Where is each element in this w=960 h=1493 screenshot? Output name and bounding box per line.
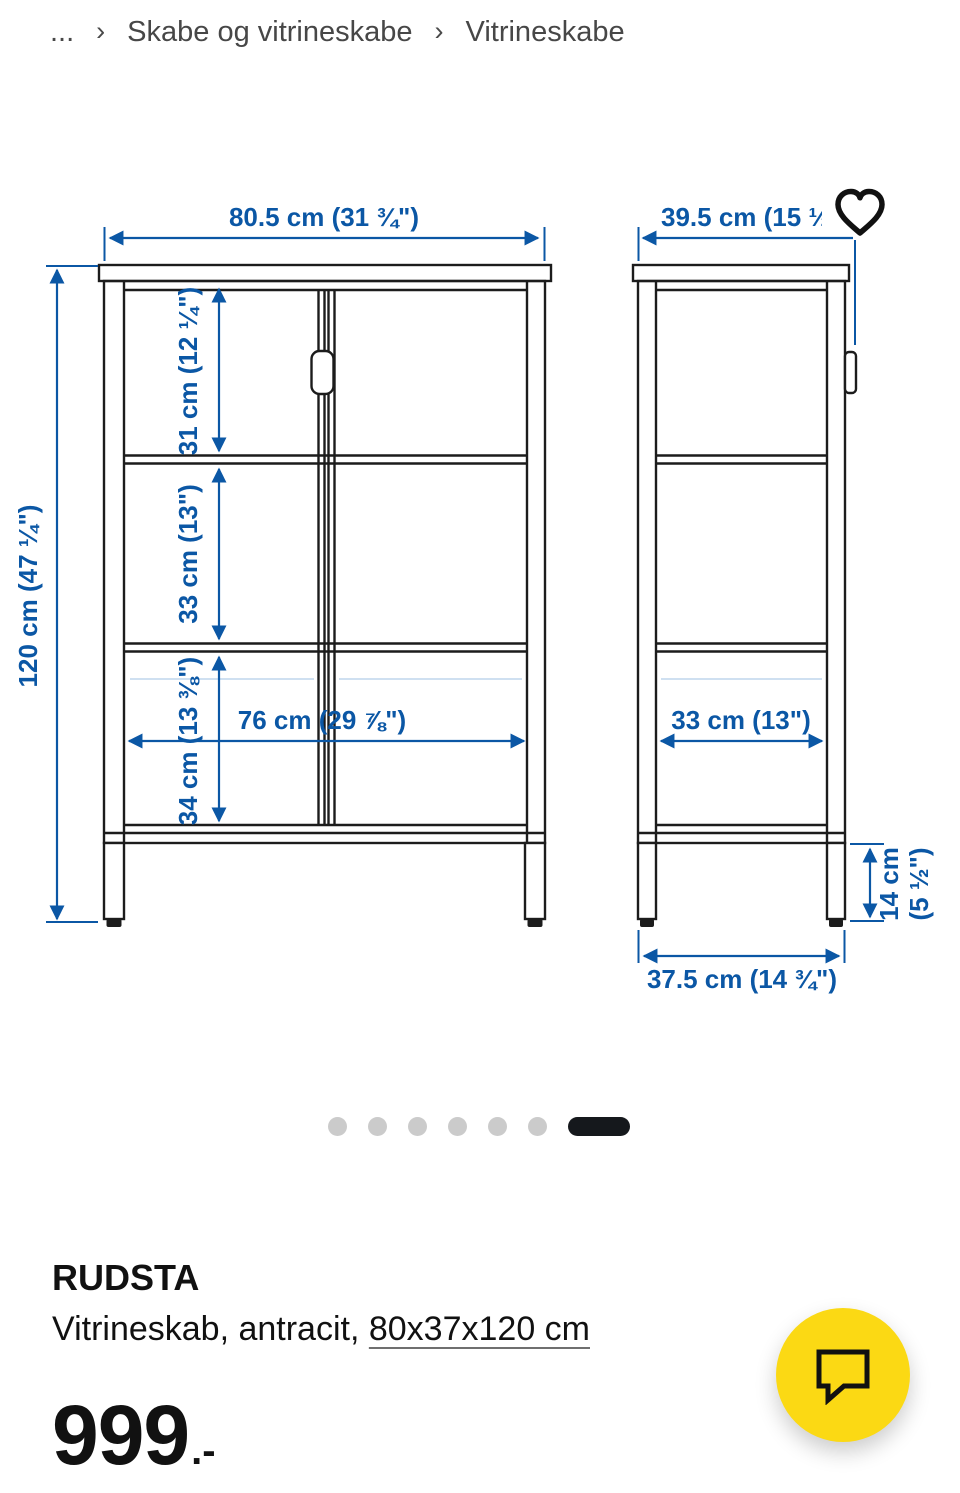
- breadcrumb-item-vitrineskabe[interactable]: Vitrineskabe: [466, 16, 625, 49]
- side-handle: [845, 352, 856, 393]
- chat-button[interactable]: [776, 1308, 910, 1442]
- breadcrumb-collapsed[interactable]: ...: [50, 16, 74, 49]
- front-dimensions: 80.5 cm (31 ¾") 120 cm (47 ¼") 31 cm (12…: [13, 202, 545, 922]
- price-amount: 999: [52, 1393, 189, 1477]
- carousel-dot-6[interactable]: [528, 1117, 547, 1136]
- chat-bubble-icon: [814, 1345, 872, 1405]
- carousel-dot-active[interactable]: [568, 1117, 630, 1136]
- dim-interior-depth: 33 cm (13"): [671, 705, 811, 735]
- carousel-dot-1[interactable]: [328, 1117, 347, 1136]
- dim-overall-height: 120 cm (47 ¼"): [13, 505, 43, 688]
- dim-leg-height-line2: (5 ½"): [904, 847, 934, 920]
- carousel-dot-2[interactable]: [368, 1117, 387, 1136]
- image-carousel-indicator: [328, 1117, 630, 1136]
- cabinet-side-view: [633, 265, 856, 927]
- carousel-dot-4[interactable]: [448, 1117, 467, 1136]
- product-description: Vitrineskab, antracit, 80x37x120 cm: [52, 1308, 590, 1351]
- heart-icon: [838, 192, 882, 234]
- product-type-color: Vitrineskab, antracit,: [52, 1310, 369, 1348]
- dim-middle-section: 33 cm (13"): [173, 484, 203, 624]
- dim-overall-depth: 39.5 cm (15 ½: [661, 202, 830, 232]
- chevron-right-icon: ›: [96, 16, 105, 47]
- carousel-dot-3[interactable]: [408, 1117, 427, 1136]
- price: 999 .-: [52, 1393, 216, 1477]
- dim-base-depth: 37.5 cm (14 ¾"): [647, 964, 837, 994]
- chevron-right-icon: ›: [435, 16, 444, 47]
- product-name: RUDSTA: [52, 1256, 590, 1299]
- favorite-button[interactable]: [838, 192, 882, 234]
- product-page: { "breadcrumb": { "collapsed": "...", "s…: [0, 0, 960, 1493]
- breadcrumb-item-skabe[interactable]: Skabe og vitrineskabe: [127, 16, 412, 49]
- dim-overall-width: 80.5 cm (31 ¾"): [229, 202, 419, 232]
- dim-interior-width: 76 cm (29 ⅞"): [238, 705, 406, 735]
- product-dimensions-link[interactable]: 80x37x120 cm: [369, 1310, 590, 1348]
- carousel-dot-5[interactable]: [488, 1117, 507, 1136]
- dim-leg-height-line1: 14 cm: [874, 847, 904, 921]
- breadcrumb: ... › Skabe og vitrineskabe › Vitrineska…: [50, 16, 625, 49]
- cabinet-front-view: [99, 265, 551, 927]
- door-handle: [312, 351, 334, 394]
- dimension-diagram: 80.5 cm (31 ¾") 120 cm (47 ¼") 31 cm (12…: [0, 180, 960, 1000]
- price-suffix: .-: [191, 1429, 215, 1474]
- side-dimensions: 39.5 cm (15 ½ 33 cm (13") 14 cm (5 ½") 3…: [639, 202, 935, 994]
- product-info: RUDSTA Vitrineskab, antracit, 80x37x120 …: [52, 1256, 590, 1351]
- dim-top-section: 31 cm (12 ¼"): [173, 287, 203, 455]
